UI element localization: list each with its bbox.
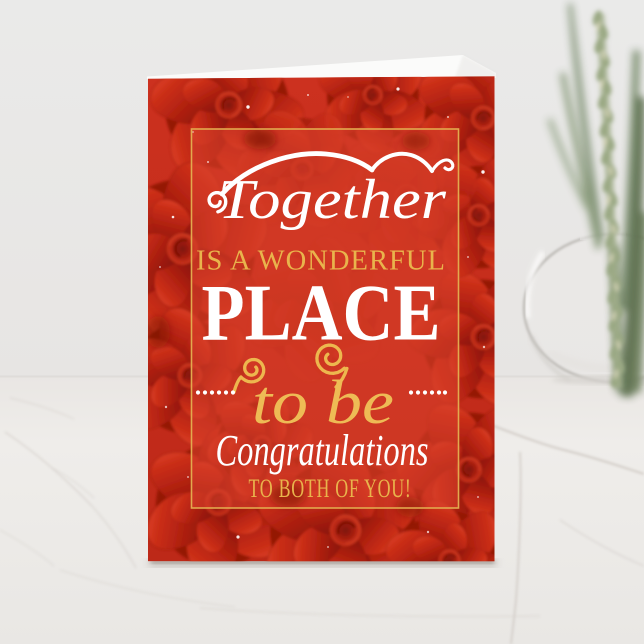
svg-text:TO BOTH OF YOU!: TO BOTH OF YOU! [249, 474, 412, 503]
svg-text:Congratulations: Congratulations [216, 426, 429, 475]
svg-text:PLACE: PLACE [202, 270, 441, 358]
svg-text:Together: Together [218, 169, 446, 231]
